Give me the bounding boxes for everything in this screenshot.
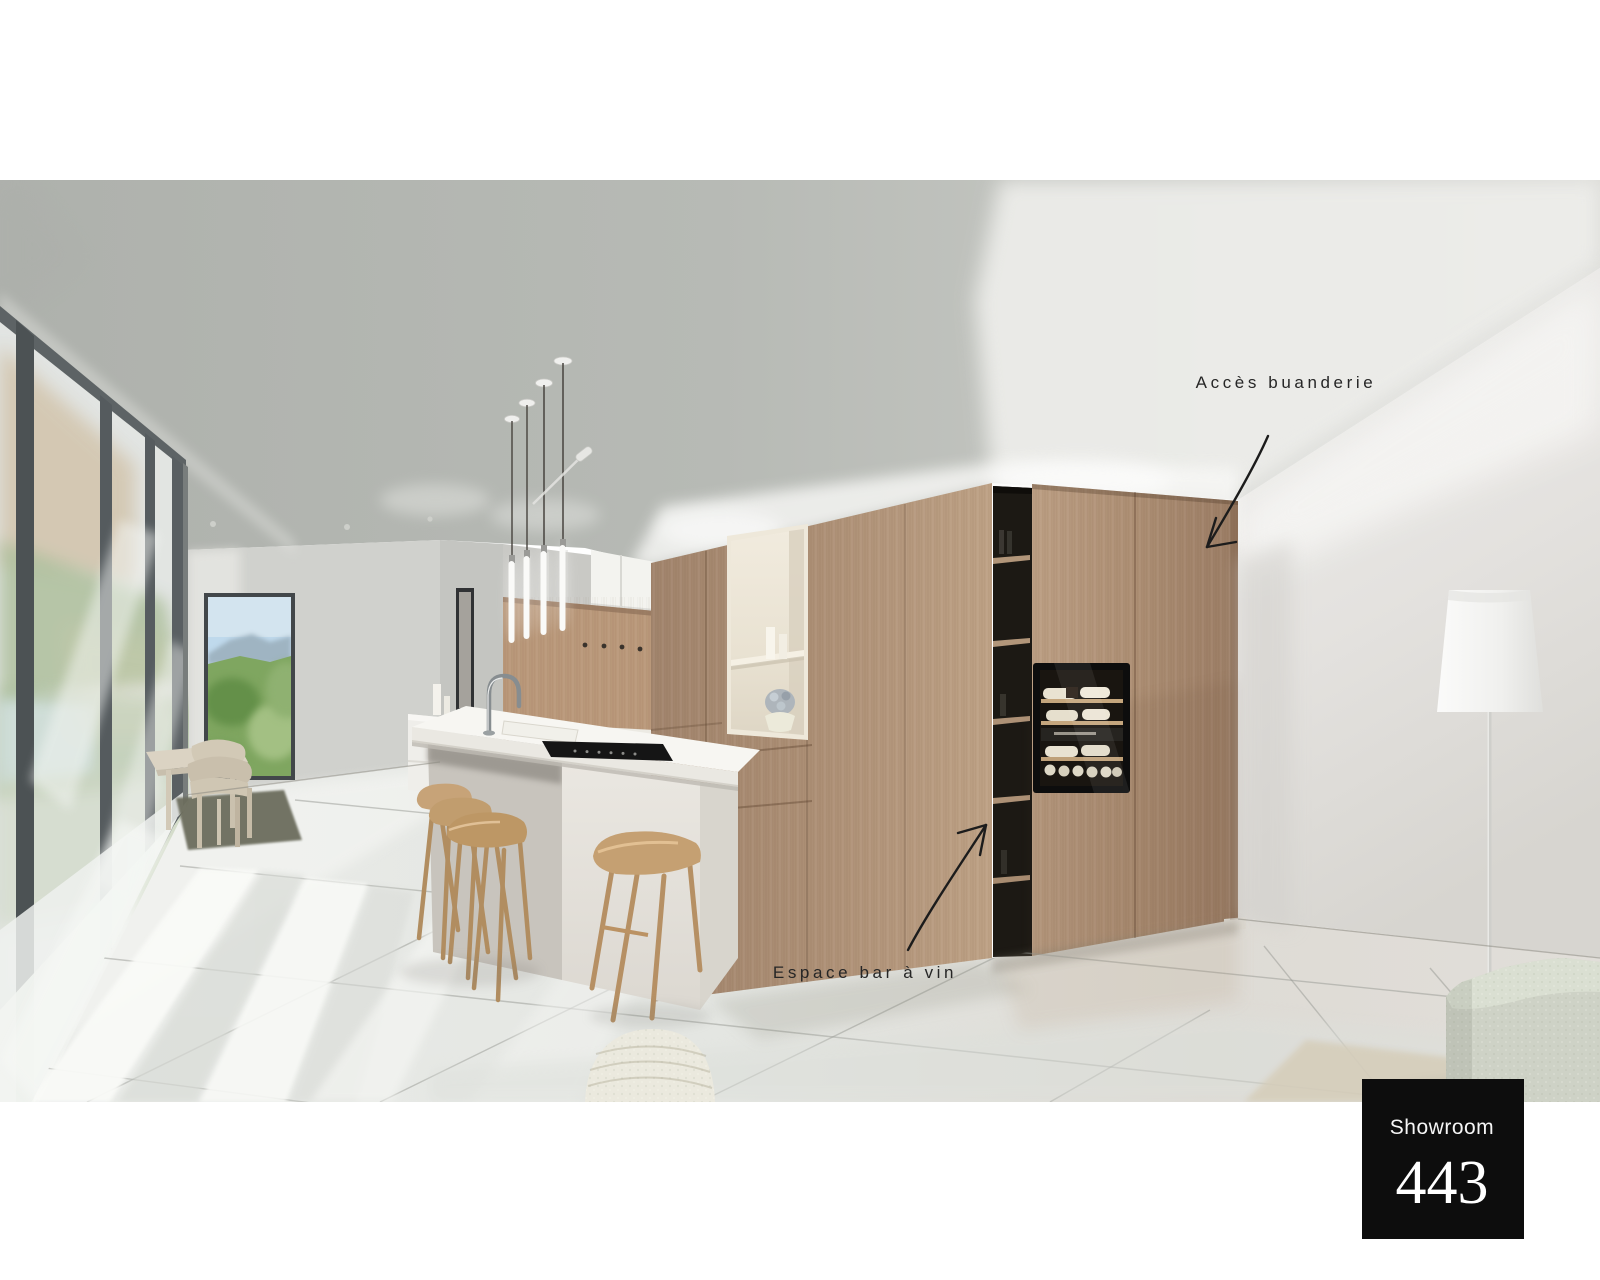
svg-text:443: 443: [1396, 1149, 1489, 1217]
svg-text:Showroom: Showroom: [1390, 1116, 1494, 1139]
svg-text:Espace bar à vin: Espace bar à vin: [773, 963, 957, 982]
svg-text:Accès buanderie: Accès buanderie: [1196, 373, 1377, 392]
